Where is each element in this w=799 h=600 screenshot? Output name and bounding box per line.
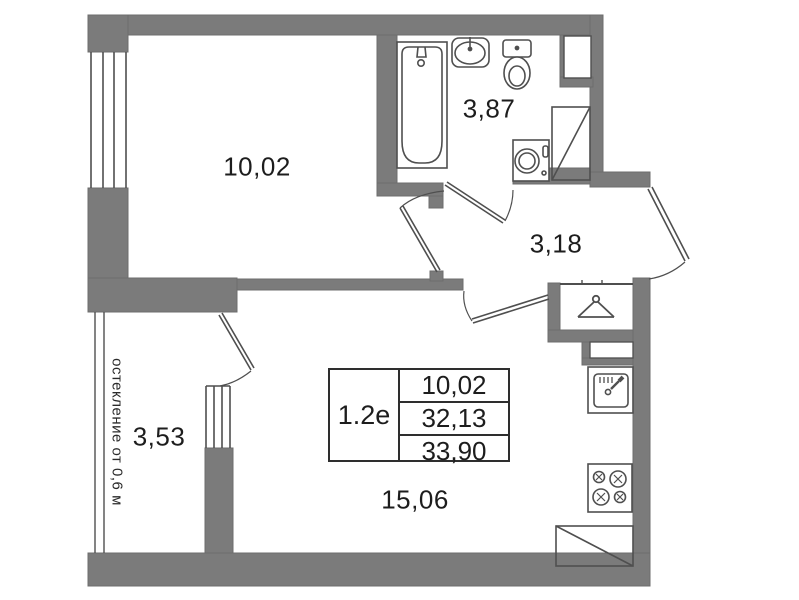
window-icon [91,52,126,188]
kitchen-sink-icon [588,367,633,413]
hallway-area-label: 3,18 [530,229,583,260]
kitchen-living-area-label: 15,06 [381,485,449,516]
toilet-icon [503,40,531,89]
kitchen-niche [590,342,633,358]
unit-info-table: 1.2e 10,02 32,13 33,90 [328,368,510,462]
total-area-value: 32,13 [400,403,508,436]
full-area-value: 33,90 [400,436,508,467]
balcony-window-icon [206,386,230,448]
washing-machine-icon [513,140,549,181]
hanger-icon [578,296,614,317]
balcony-area-label: 3,53 [133,422,186,453]
unit-code-cell: 1.2e [330,370,400,460]
living-area-value: 10,02 [400,370,508,403]
bath-sink-icon [452,37,489,67]
entrance-door-icon [648,187,689,279]
balcony-door-icon [219,313,254,386]
bathroom-area-label: 3,87 [463,94,516,125]
vent-shaft-icon [564,36,591,78]
main-room-door-icon [464,291,549,323]
balcony-glazing-icon [95,312,104,553]
bathtub-icon [397,42,447,168]
unit-areas-column: 10,02 32,13 33,90 [400,370,508,460]
floor-plan: 10,02 3,87 3,18 3,53 15,06 остекление от… [0,0,799,600]
living-room-area-label: 10,02 [223,152,291,183]
bathroom-door-icon [445,182,513,223]
stove-icon [588,464,632,512]
closet-front-line [560,280,633,284]
walls [88,15,650,586]
glazing-note: остекление от 0,6 м [109,358,126,506]
